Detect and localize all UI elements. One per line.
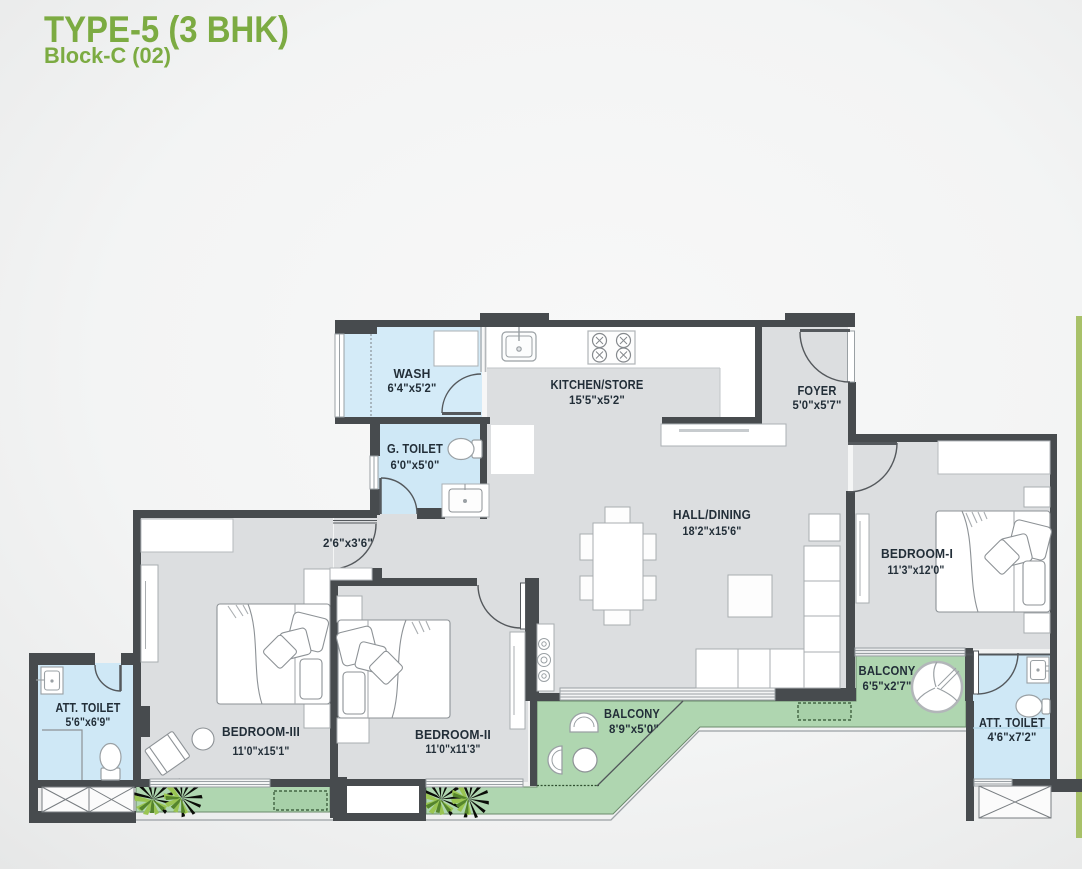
svg-text:BEDROOM-II: BEDROOM-II	[415, 727, 491, 742]
svg-text:WASH: WASH	[394, 366, 431, 381]
svg-text:BEDROOM-I: BEDROOM-I	[881, 546, 953, 561]
svg-text:KITCHEN/STORE: KITCHEN/STORE	[551, 377, 644, 392]
svg-text:5'0"x5'7": 5'0"x5'7"	[793, 398, 842, 412]
svg-text:ATT. TOILET: ATT. TOILET	[56, 700, 121, 715]
svg-text:ATT. TOILET: ATT. TOILET	[979, 715, 1045, 730]
svg-text:6'5"x2'7": 6'5"x2'7"	[863, 679, 912, 693]
svg-text:11'0"x11'3": 11'0"x11'3"	[426, 742, 481, 756]
svg-text:5'6"x6'9": 5'6"x6'9"	[66, 715, 111, 729]
svg-text:2'6"x3'6": 2'6"x3'6"	[323, 536, 373, 550]
svg-text:11'3"x12'0": 11'3"x12'0"	[888, 563, 945, 577]
svg-text:4'6"x7'2": 4'6"x7'2"	[988, 730, 1037, 744]
svg-text:15'5"x5'2": 15'5"x5'2"	[569, 393, 625, 407]
svg-text:BALCONY: BALCONY	[859, 663, 916, 678]
svg-text:G. TOILET: G. TOILET	[387, 441, 443, 456]
svg-text:8'9"x5'0": 8'9"x5'0"	[609, 722, 659, 736]
svg-text:6'4"x5'2": 6'4"x5'2"	[388, 381, 437, 395]
svg-text:BALCONY: BALCONY	[604, 706, 660, 721]
svg-text:Block-C (02): Block-C (02)	[44, 43, 171, 68]
svg-text:6'0"x5'0": 6'0"x5'0"	[391, 458, 440, 472]
svg-text:FOYER: FOYER	[798, 383, 837, 398]
svg-text:HALL/DINING: HALL/DINING	[673, 507, 751, 522]
svg-text:18'2"x15'6": 18'2"x15'6"	[683, 524, 742, 538]
svg-text:11'0"x15'1": 11'0"x15'1"	[233, 744, 290, 758]
svg-text:BEDROOM-III: BEDROOM-III	[222, 724, 300, 739]
